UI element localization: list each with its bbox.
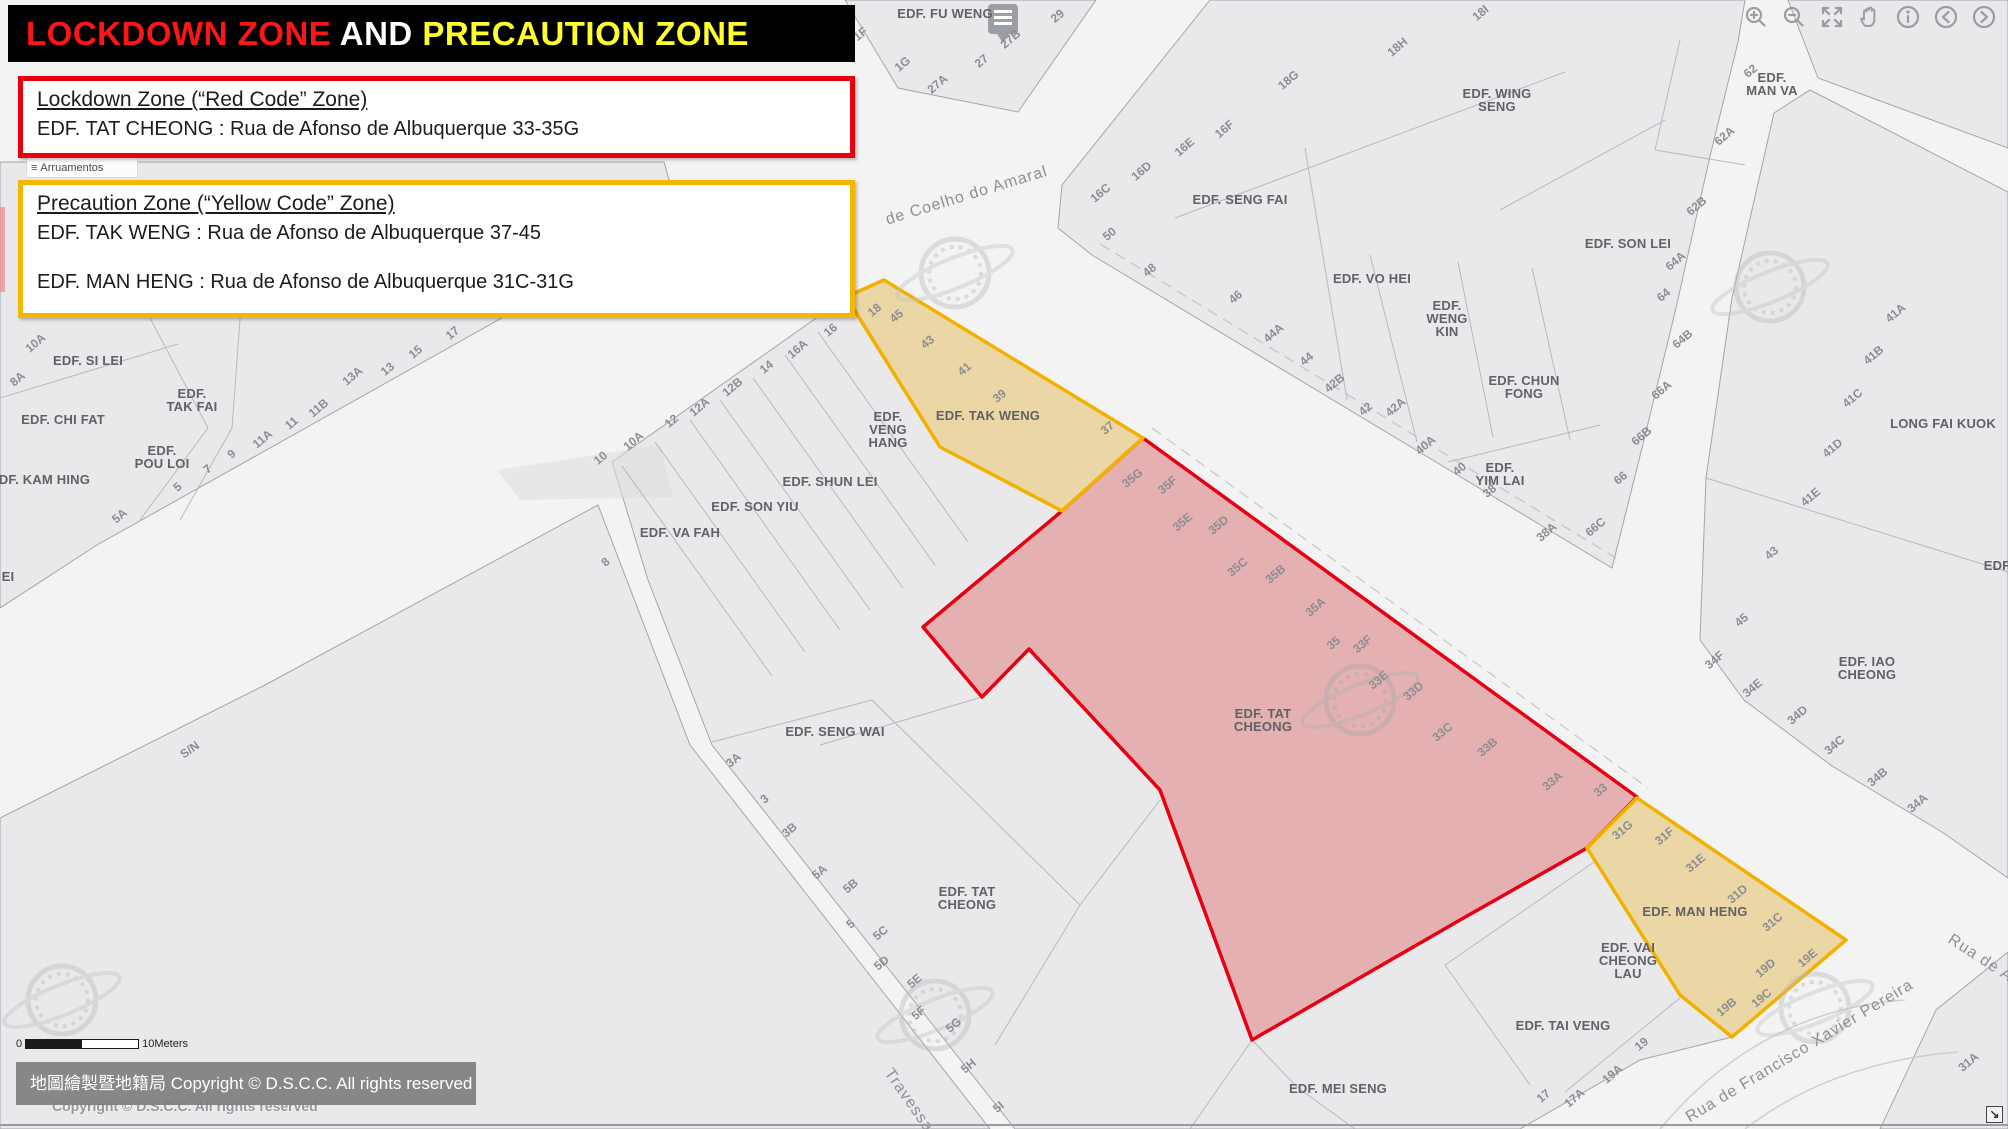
- lockdown-zone-address: EDF. TAT CHEONG : Rua de Afonso de Albuq…: [37, 116, 836, 143]
- street-name: de Coelho do Amaral: [884, 163, 1050, 229]
- copyright-bar: 地圖繪製暨地籍局 Copyright © D.S.C.C. All rights…: [16, 1062, 476, 1105]
- title-banner: LOCKDOWN ZONE AND PRECAUTION ZONE: [8, 5, 855, 62]
- legend-fragment-label: Arruamentos: [40, 162, 103, 174]
- banner-precaution-text: PRECAUTION ZONE: [422, 15, 749, 53]
- info-button[interactable]: [1895, 4, 1921, 30]
- next-extent-button[interactable]: [1971, 4, 1997, 30]
- parcel-number: 64B: [1669, 326, 1695, 351]
- bottom-divider: [0, 1124, 2008, 1126]
- building-label: EDF. SI LEI: [53, 353, 123, 368]
- scale-bar-graphic: [25, 1039, 139, 1049]
- banner-and-text: AND: [331, 15, 422, 53]
- building-label: EDF. IAOCHEONG: [1838, 654, 1896, 682]
- building-label: EDF. SENG WAI: [785, 724, 884, 739]
- zoom-out-button[interactable]: [1781, 4, 1807, 30]
- building-label: EDF. SENG FAI: [1192, 192, 1287, 207]
- hatch-icon: ≡: [31, 162, 37, 174]
- pan-hand-button[interactable]: [1857, 4, 1883, 30]
- watermark-logo: [892, 236, 1018, 310]
- scale-start-label: 0: [16, 1038, 22, 1050]
- previous-extent-button[interactable]: [1933, 4, 1959, 30]
- precaution-zone-address-2: EDF. MAN HENG : Rua de Afonso de Albuque…: [37, 269, 836, 296]
- map-viewer: EDF. FU WENGEDF. SAN IENGEDF. WINGSENGED…: [0, 0, 2008, 1129]
- building-label: EDF. VO HEI: [1333, 271, 1411, 286]
- fullscreen-button[interactable]: [1819, 4, 1845, 30]
- map-canvas[interactable]: EDF. FU WENGEDF. SAN IENGEDF. WINGSENGED…: [0, 0, 2008, 1129]
- building-label: EDF. SON YIU: [711, 499, 798, 514]
- corner-expand-icon[interactable]: ↘: [1986, 1106, 2003, 1123]
- building-label: EDF. TAI VENG: [1516, 1018, 1611, 1033]
- lockdown-zone-title: Lockdown Zone (“Red Code” Zone): [37, 88, 836, 112]
- building-label: EDF: [1984, 558, 2008, 573]
- building-label: EDF. MEI SENG: [1289, 1081, 1387, 1096]
- building-label: EDF. TATCHEONG: [1234, 706, 1292, 734]
- building-label: EDF. FU WENG: [897, 6, 993, 21]
- scale-end-label: 10Meters: [142, 1038, 188, 1050]
- lockdown-zone-infobox: Lockdown Zone (“Red Code” Zone) EDF. TAT…: [18, 76, 855, 158]
- building-label: EI: [2, 569, 15, 584]
- banner-lockdown-text: LOCKDOWN ZONE: [26, 15, 331, 53]
- scale-bar: 0 10Meters: [16, 1038, 188, 1050]
- building-label: EDF. VA FAH: [640, 525, 720, 540]
- building-label: EDF. SHUN LEI: [782, 474, 877, 489]
- building-label: EDF. TAK WENG: [936, 408, 1040, 423]
- building-label: EDF. MAN HENG: [1642, 904, 1747, 919]
- building-label: LONG FAI KUOK: [1890, 416, 1996, 431]
- precaution-zone-title: Precaution Zone (“Yellow Code” Zone): [37, 192, 836, 216]
- zoom-in-button[interactable]: [1743, 4, 1769, 30]
- building-label: EDF. CHI FAT: [21, 412, 105, 427]
- map-toolbar: [1743, 4, 1997, 30]
- precaution-zone-infobox: Precaution Zone (“Yellow Code” Zone) EDF…: [18, 180, 855, 318]
- building-label: EDF. TATCHEONG: [938, 884, 996, 912]
- building-label: EDF.VENGHANG: [868, 409, 907, 450]
- building-label: EDF. SON LEI: [1585, 236, 1671, 251]
- building-label: EDF. KAM HING: [0, 472, 90, 487]
- precaution-zone-address-1: EDF. TAK WENG : Rua de Afonso de Albuque…: [37, 220, 836, 247]
